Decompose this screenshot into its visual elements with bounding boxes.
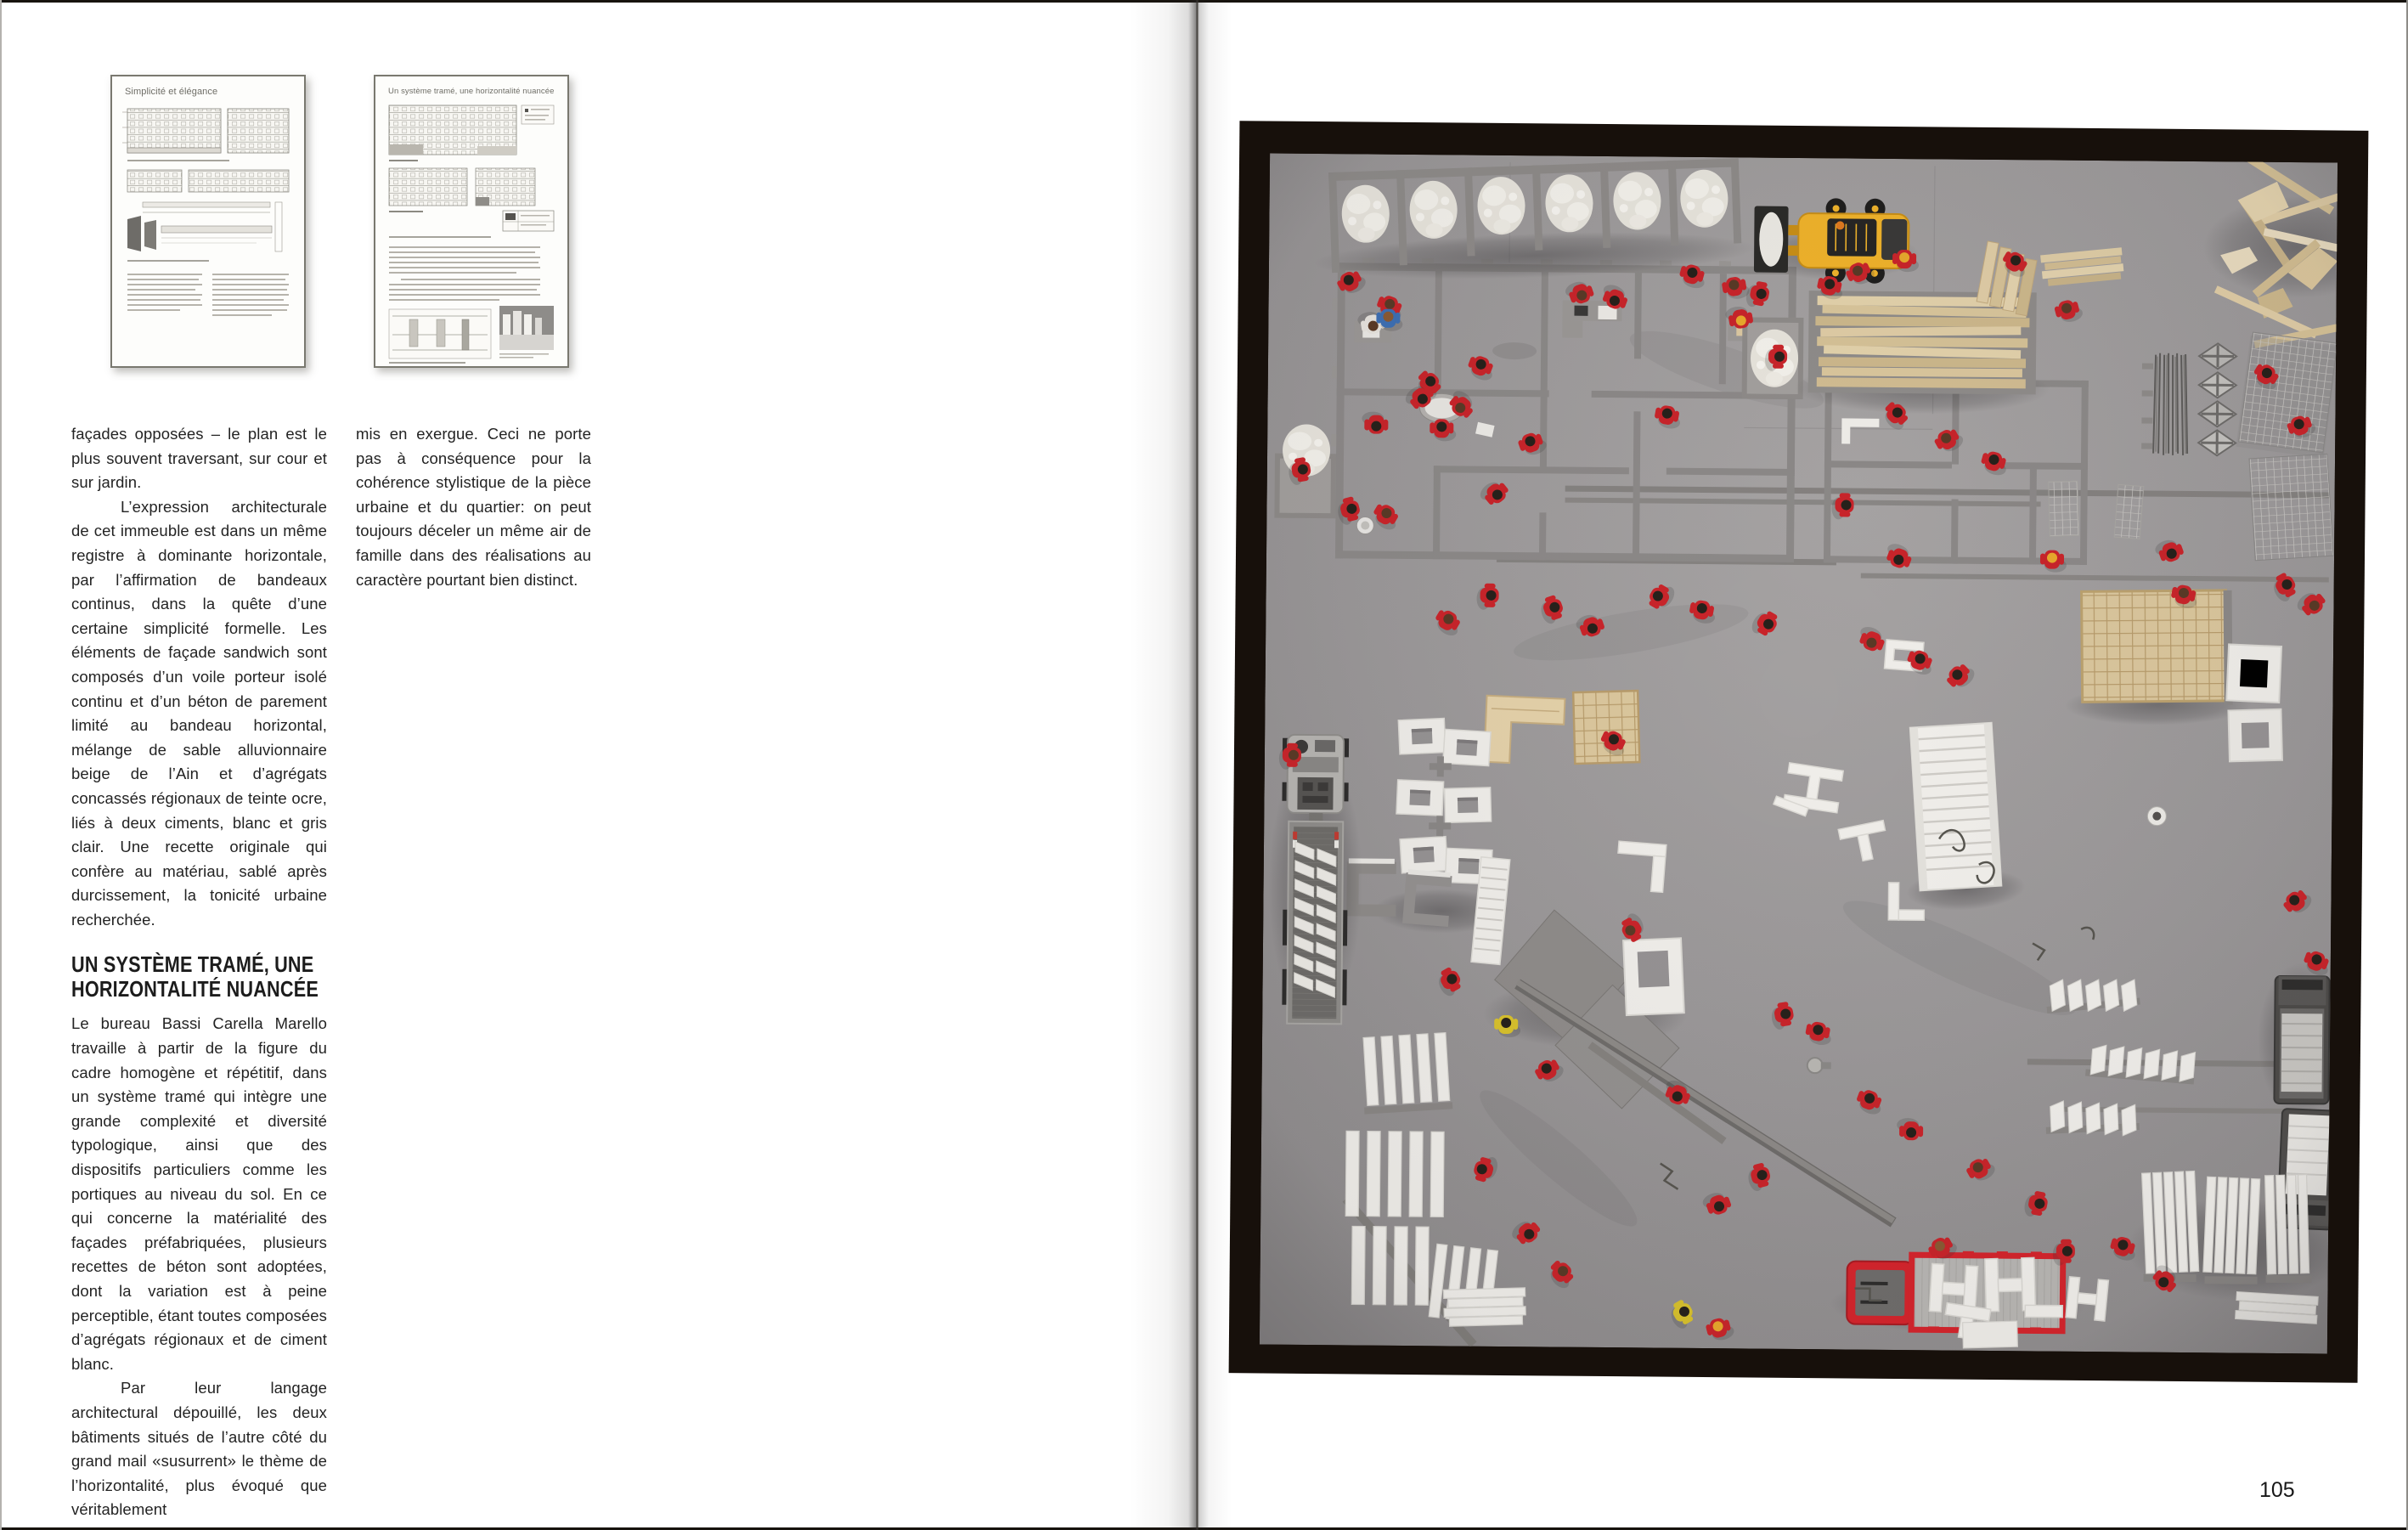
scan-edge-left [0,0,2,1530]
thumbnail-text-lines [389,246,540,301]
thumbnail-simplicite: Simplicité et élégance [110,75,306,368]
page-number: 105 [2259,1478,2295,1503]
paragraph: Le bureau Bassi Carella Marello travaill… [71,1012,327,1376]
thumbnail-systeme-trame: Un système tramé, une horizontalité nuan… [374,75,569,368]
body-column-2: mis en exergue. Ceci ne porte pas à cons… [356,422,591,592]
thumbnail-drawing [112,76,304,366]
body-column-1: façades opposées – le plan est le plus s… [71,422,327,1522]
thumbnail-text-lines [127,274,289,316]
paragraph: L’expression architecturale de cet immeu… [71,495,327,933]
scan-edge-top [0,0,2408,3]
paragraph: façades opposées – le plan est le plus s… [71,422,327,495]
thumbnail-drawing [375,76,567,366]
paragraph: mis en exergue. Ceci ne porte pas à cons… [356,422,591,592]
paragraph: Par leur langage architectural dépouillé… [71,1376,327,1522]
photo-vignette [1260,154,2338,1354]
book-spread: { "book": { "left_page": { "thumb1": { "… [0,0,2408,1530]
photo-frame [1229,121,2369,1383]
model-photo [1260,154,2338,1354]
section-heading: UN SYSTÈME TRAMÉ, UNE HORIZONTALITÉ NUAN… [71,953,328,1002]
